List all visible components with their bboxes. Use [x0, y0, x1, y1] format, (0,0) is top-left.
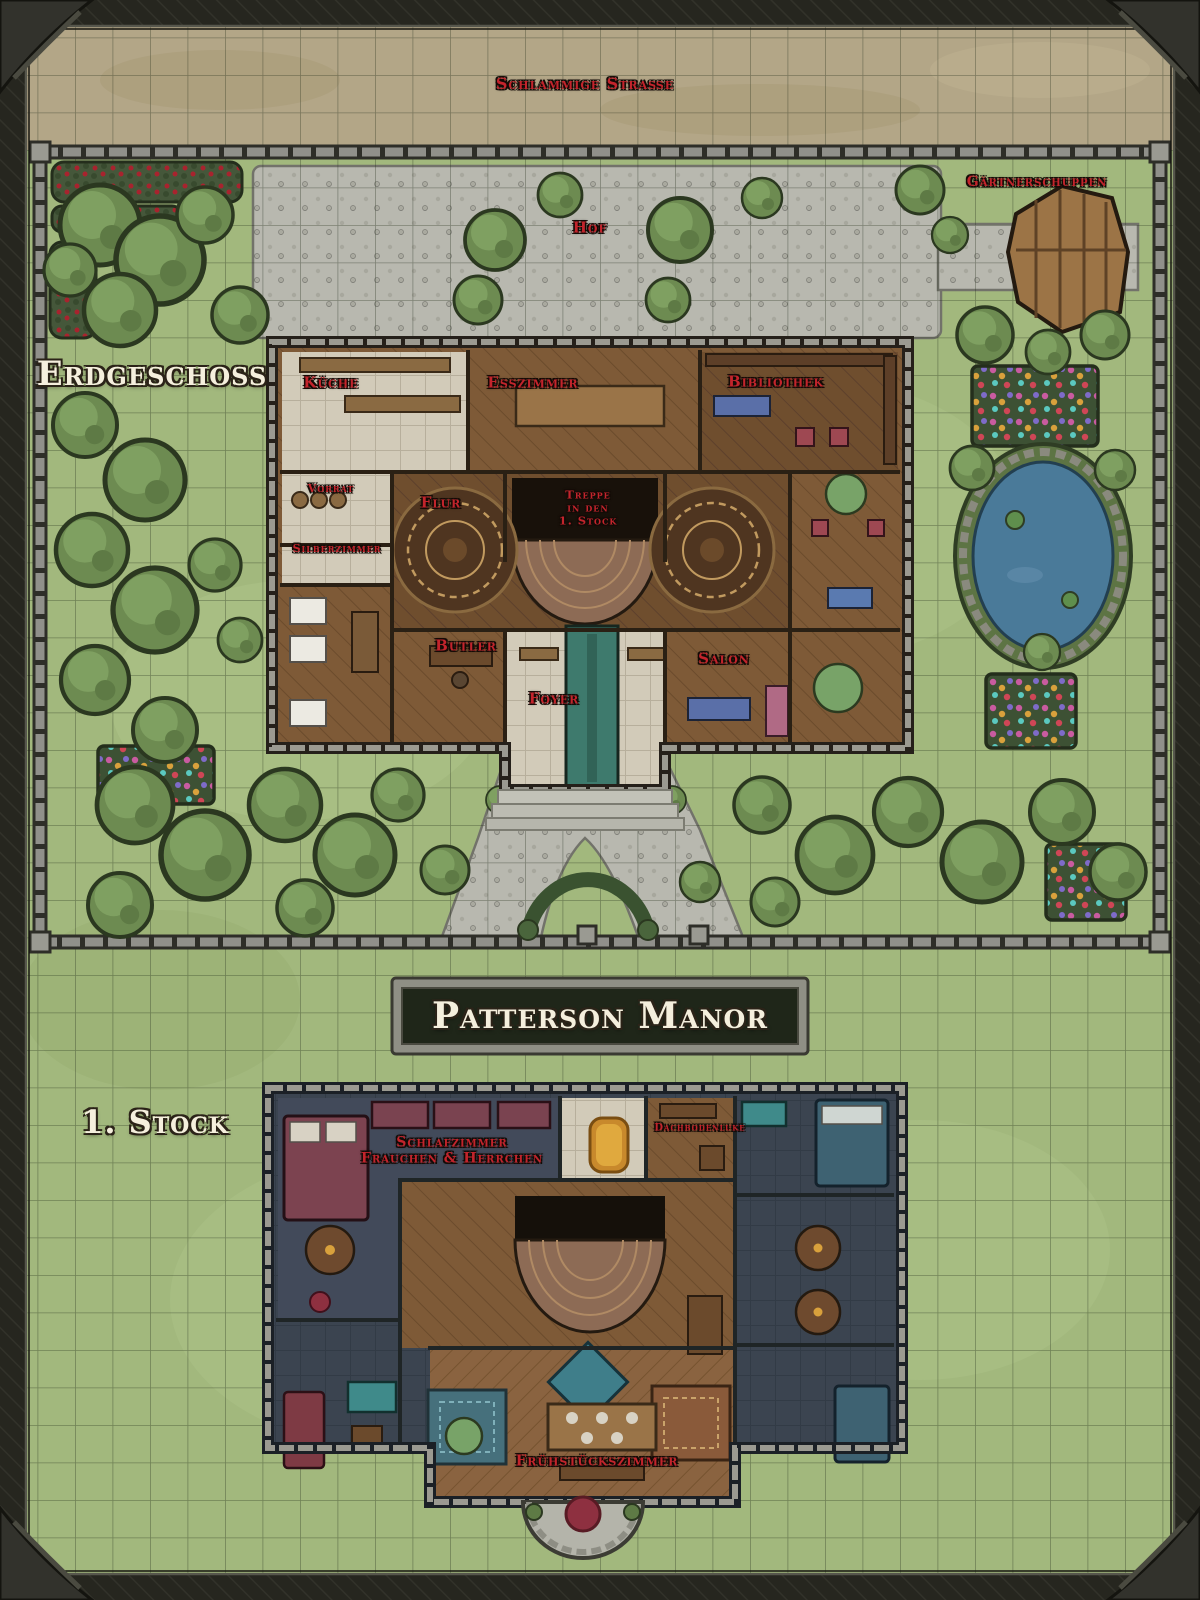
hall-rug-left — [393, 488, 517, 612]
title-plaque — [392, 978, 808, 1054]
map-screenshot: Schlammige Straße Hof Gärtnerschuppen Er… — [0, 0, 1200, 1600]
hall-rug-right — [650, 488, 774, 612]
map-scene — [0, 0, 1200, 1600]
